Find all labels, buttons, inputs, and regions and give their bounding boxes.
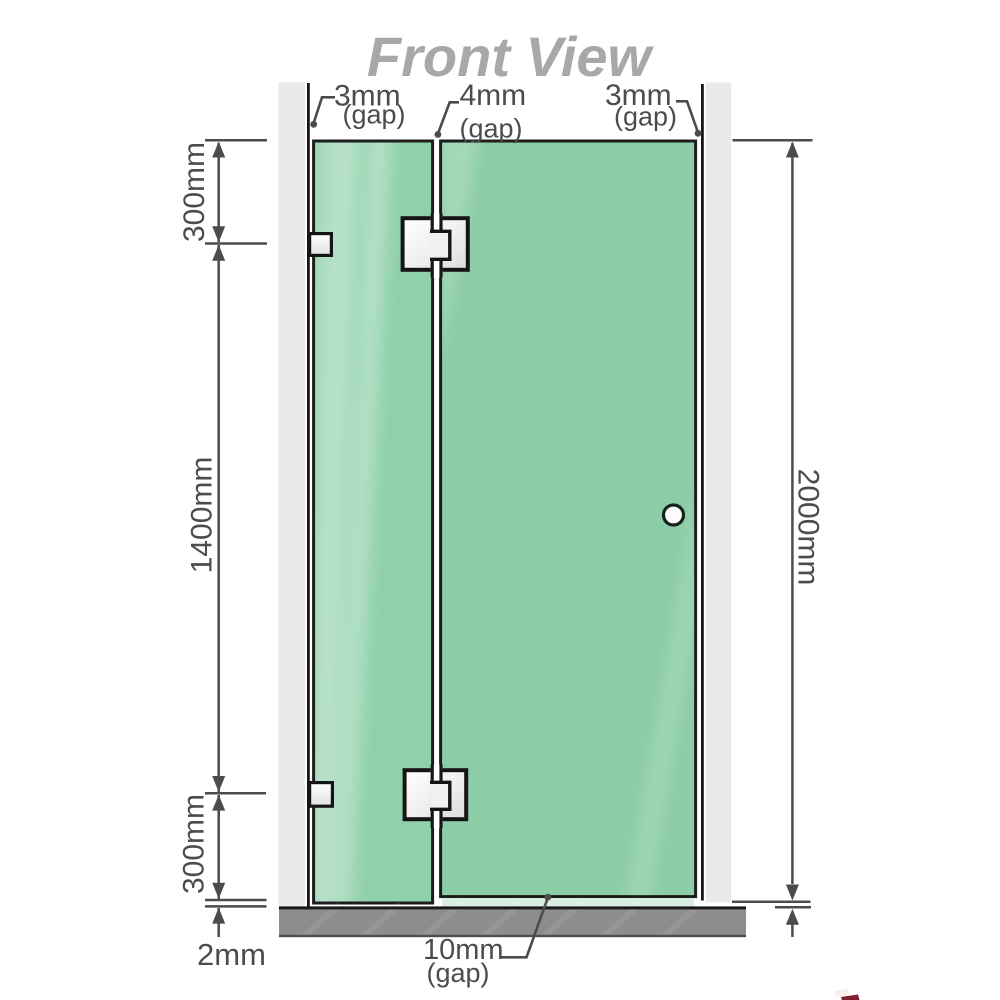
svg-text:(gap): (gap): [614, 102, 677, 132]
svg-text:300mm: 300mm: [178, 142, 211, 242]
svg-text:2mm: 2mm: [197, 937, 266, 972]
svg-text:1400mm: 1400mm: [185, 457, 218, 574]
svg-text:(gap): (gap): [342, 100, 405, 130]
svg-text:300mm: 300mm: [177, 794, 210, 894]
svg-text:2000mm: 2000mm: [792, 469, 825, 586]
svg-text:(gap): (gap): [459, 114, 522, 144]
svg-text:4mm: 4mm: [460, 79, 527, 112]
svg-text:(gap): (gap): [426, 958, 489, 988]
